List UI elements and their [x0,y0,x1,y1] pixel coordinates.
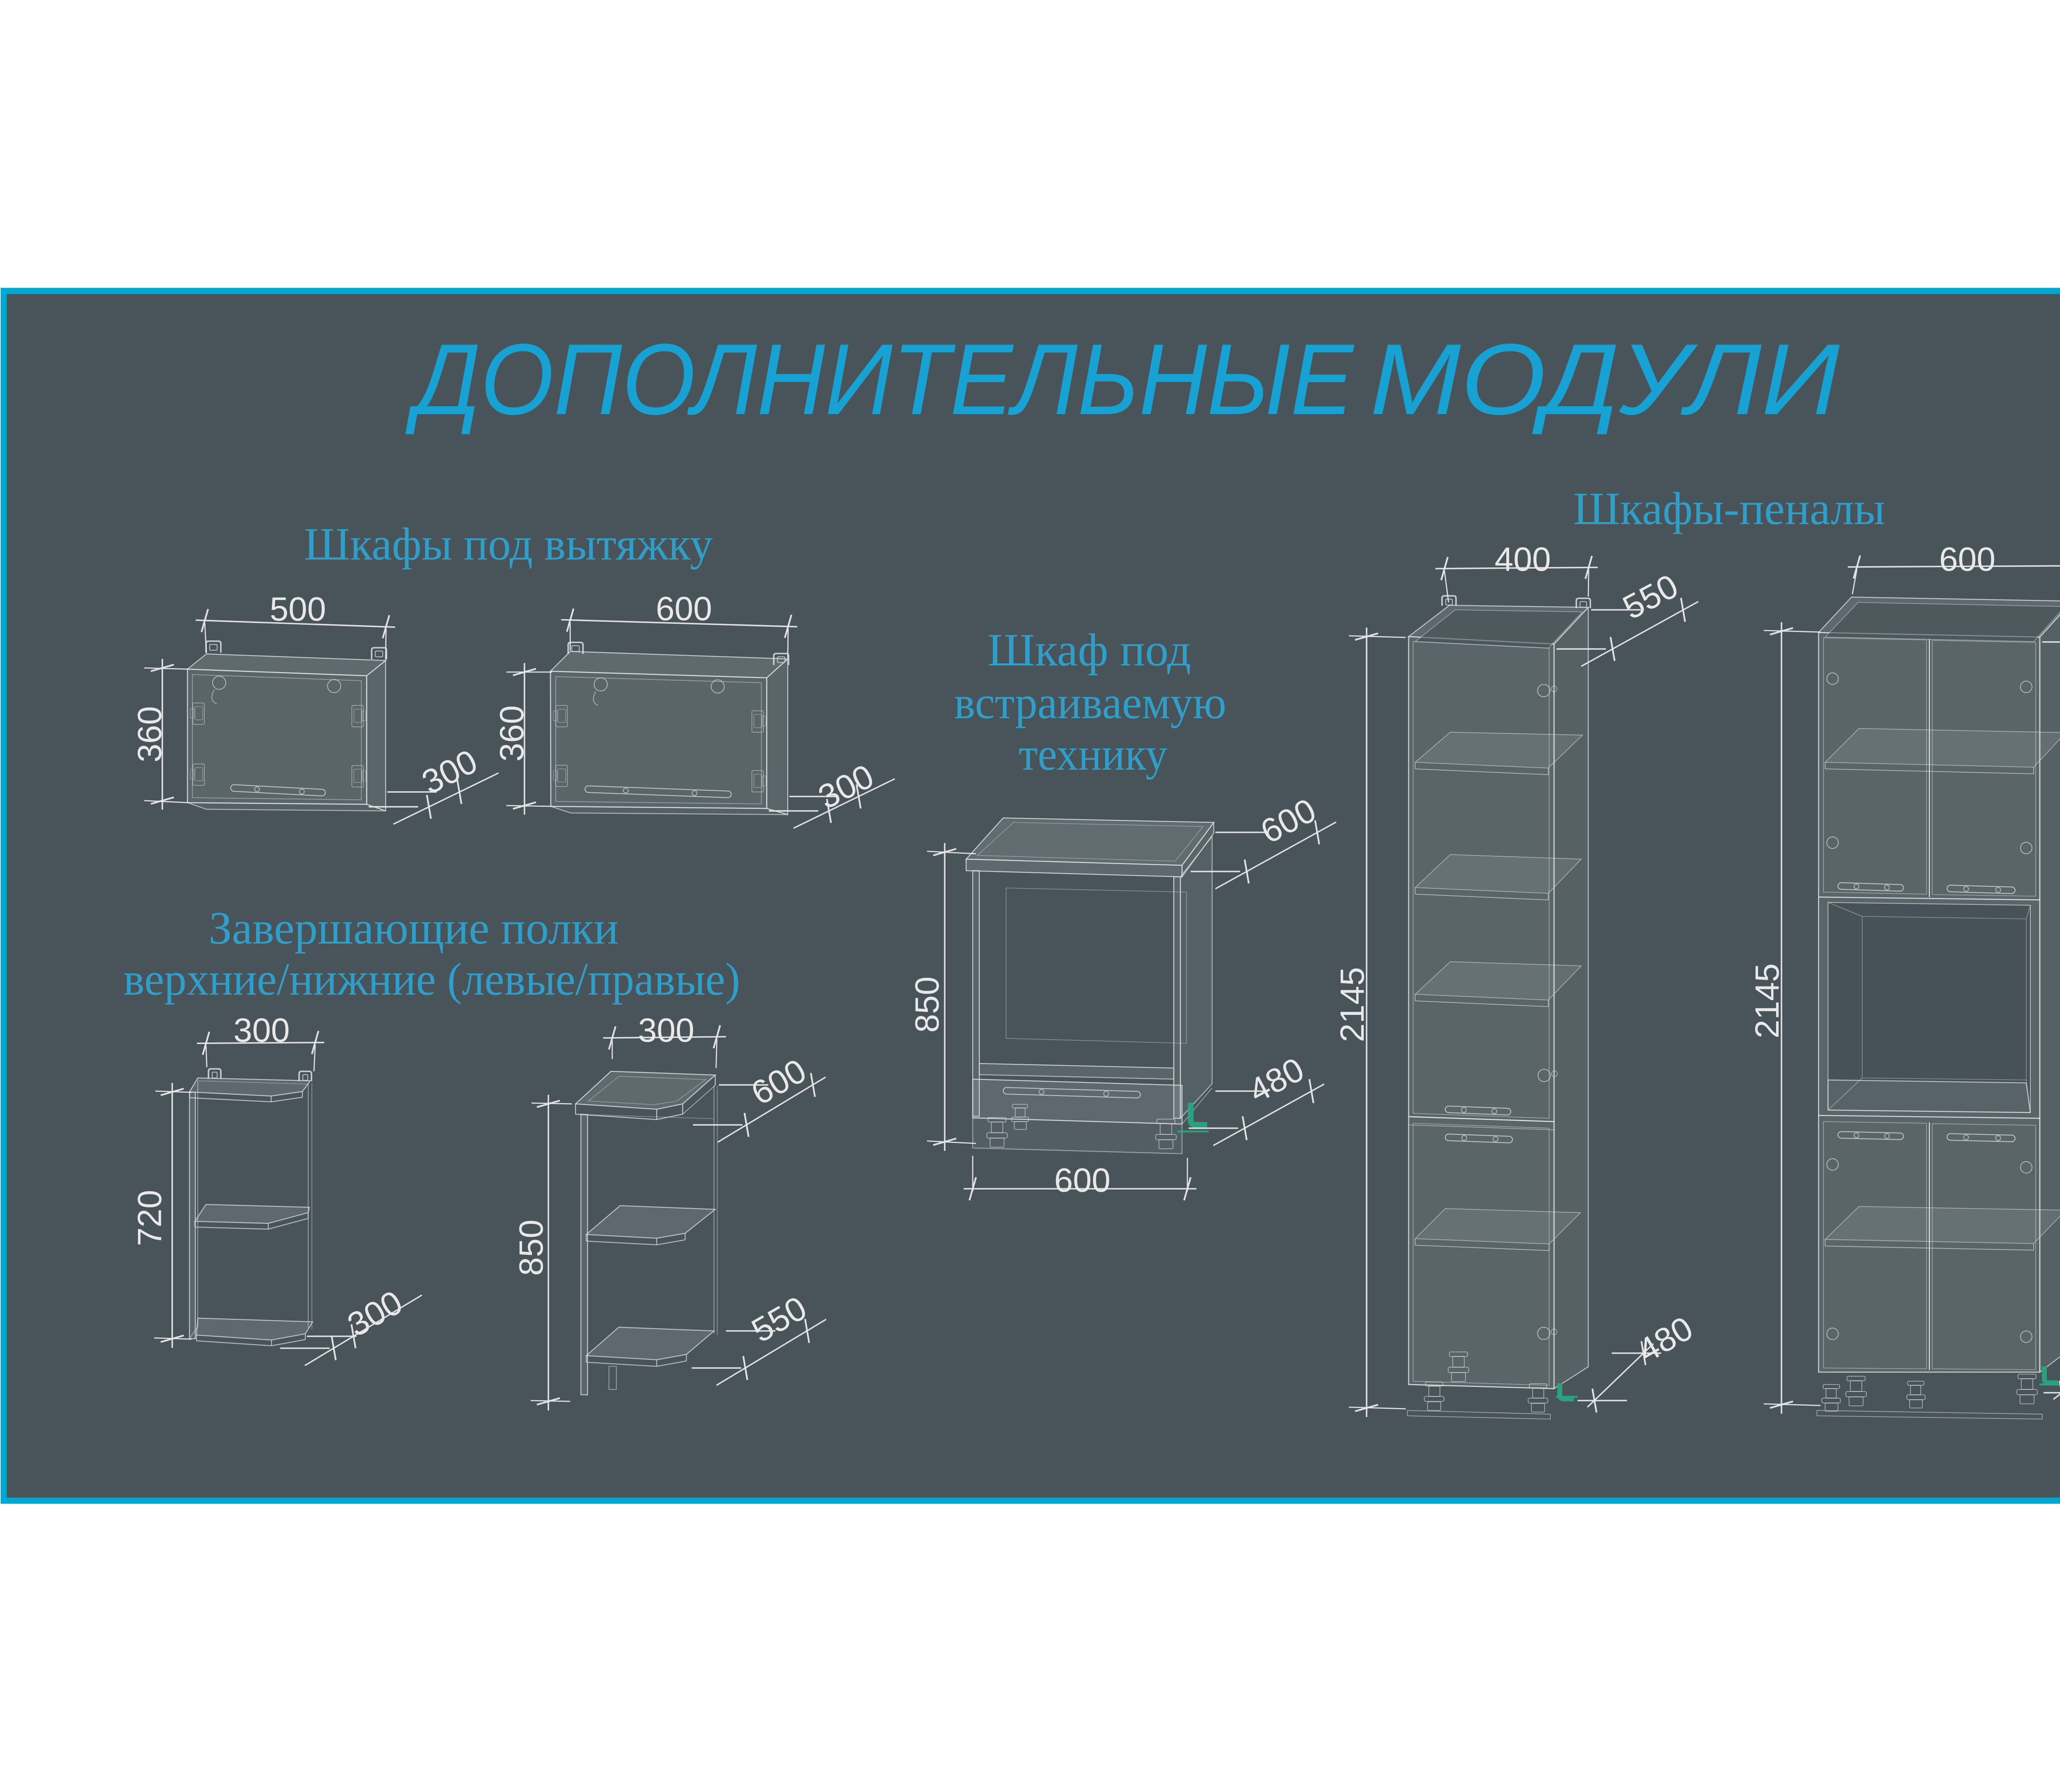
svg-text:360: 360 [131,706,169,763]
svg-text:технику: технику [1019,729,1168,780]
svg-text:МОДУЛИ: МОДУЛИ [1370,323,1840,436]
svg-text:850: 850 [908,977,946,1033]
svg-text:600: 600 [1939,541,1996,578]
svg-text:ДОПОЛНИТЕЛЬНЫЕ: ДОПОЛНИТЕЛЬНЫЕ [405,323,1355,436]
svg-text:Шкафы-пеналы: Шкафы-пеналы [1573,483,1885,534]
svg-text:Завершающие полки: Завершающие полки [209,903,619,954]
svg-text:Шкаф под: Шкаф под [988,625,1191,676]
svg-text:400: 400 [1495,541,1551,578]
svg-text:600: 600 [1054,1162,1111,1199]
svg-text:2145: 2145 [1334,967,1371,1042]
svg-text:300: 300 [234,1012,290,1049]
svg-text:встраиваемую: встраиваемую [954,677,1227,729]
svg-text:600: 600 [656,590,712,628]
svg-text:2145: 2145 [1749,963,1786,1038]
svg-text:360: 360 [493,705,531,762]
svg-text:верхние/нижние (левые/правые): верхние/нижние (левые/правые) [124,954,740,1005]
svg-text:850: 850 [513,1220,550,1276]
svg-text:720: 720 [131,1190,169,1246]
svg-text:Шкафы под вытяжку: Шкафы под вытяжку [304,519,713,570]
svg-text:300: 300 [638,1012,695,1049]
svg-text:500: 500 [270,590,326,628]
